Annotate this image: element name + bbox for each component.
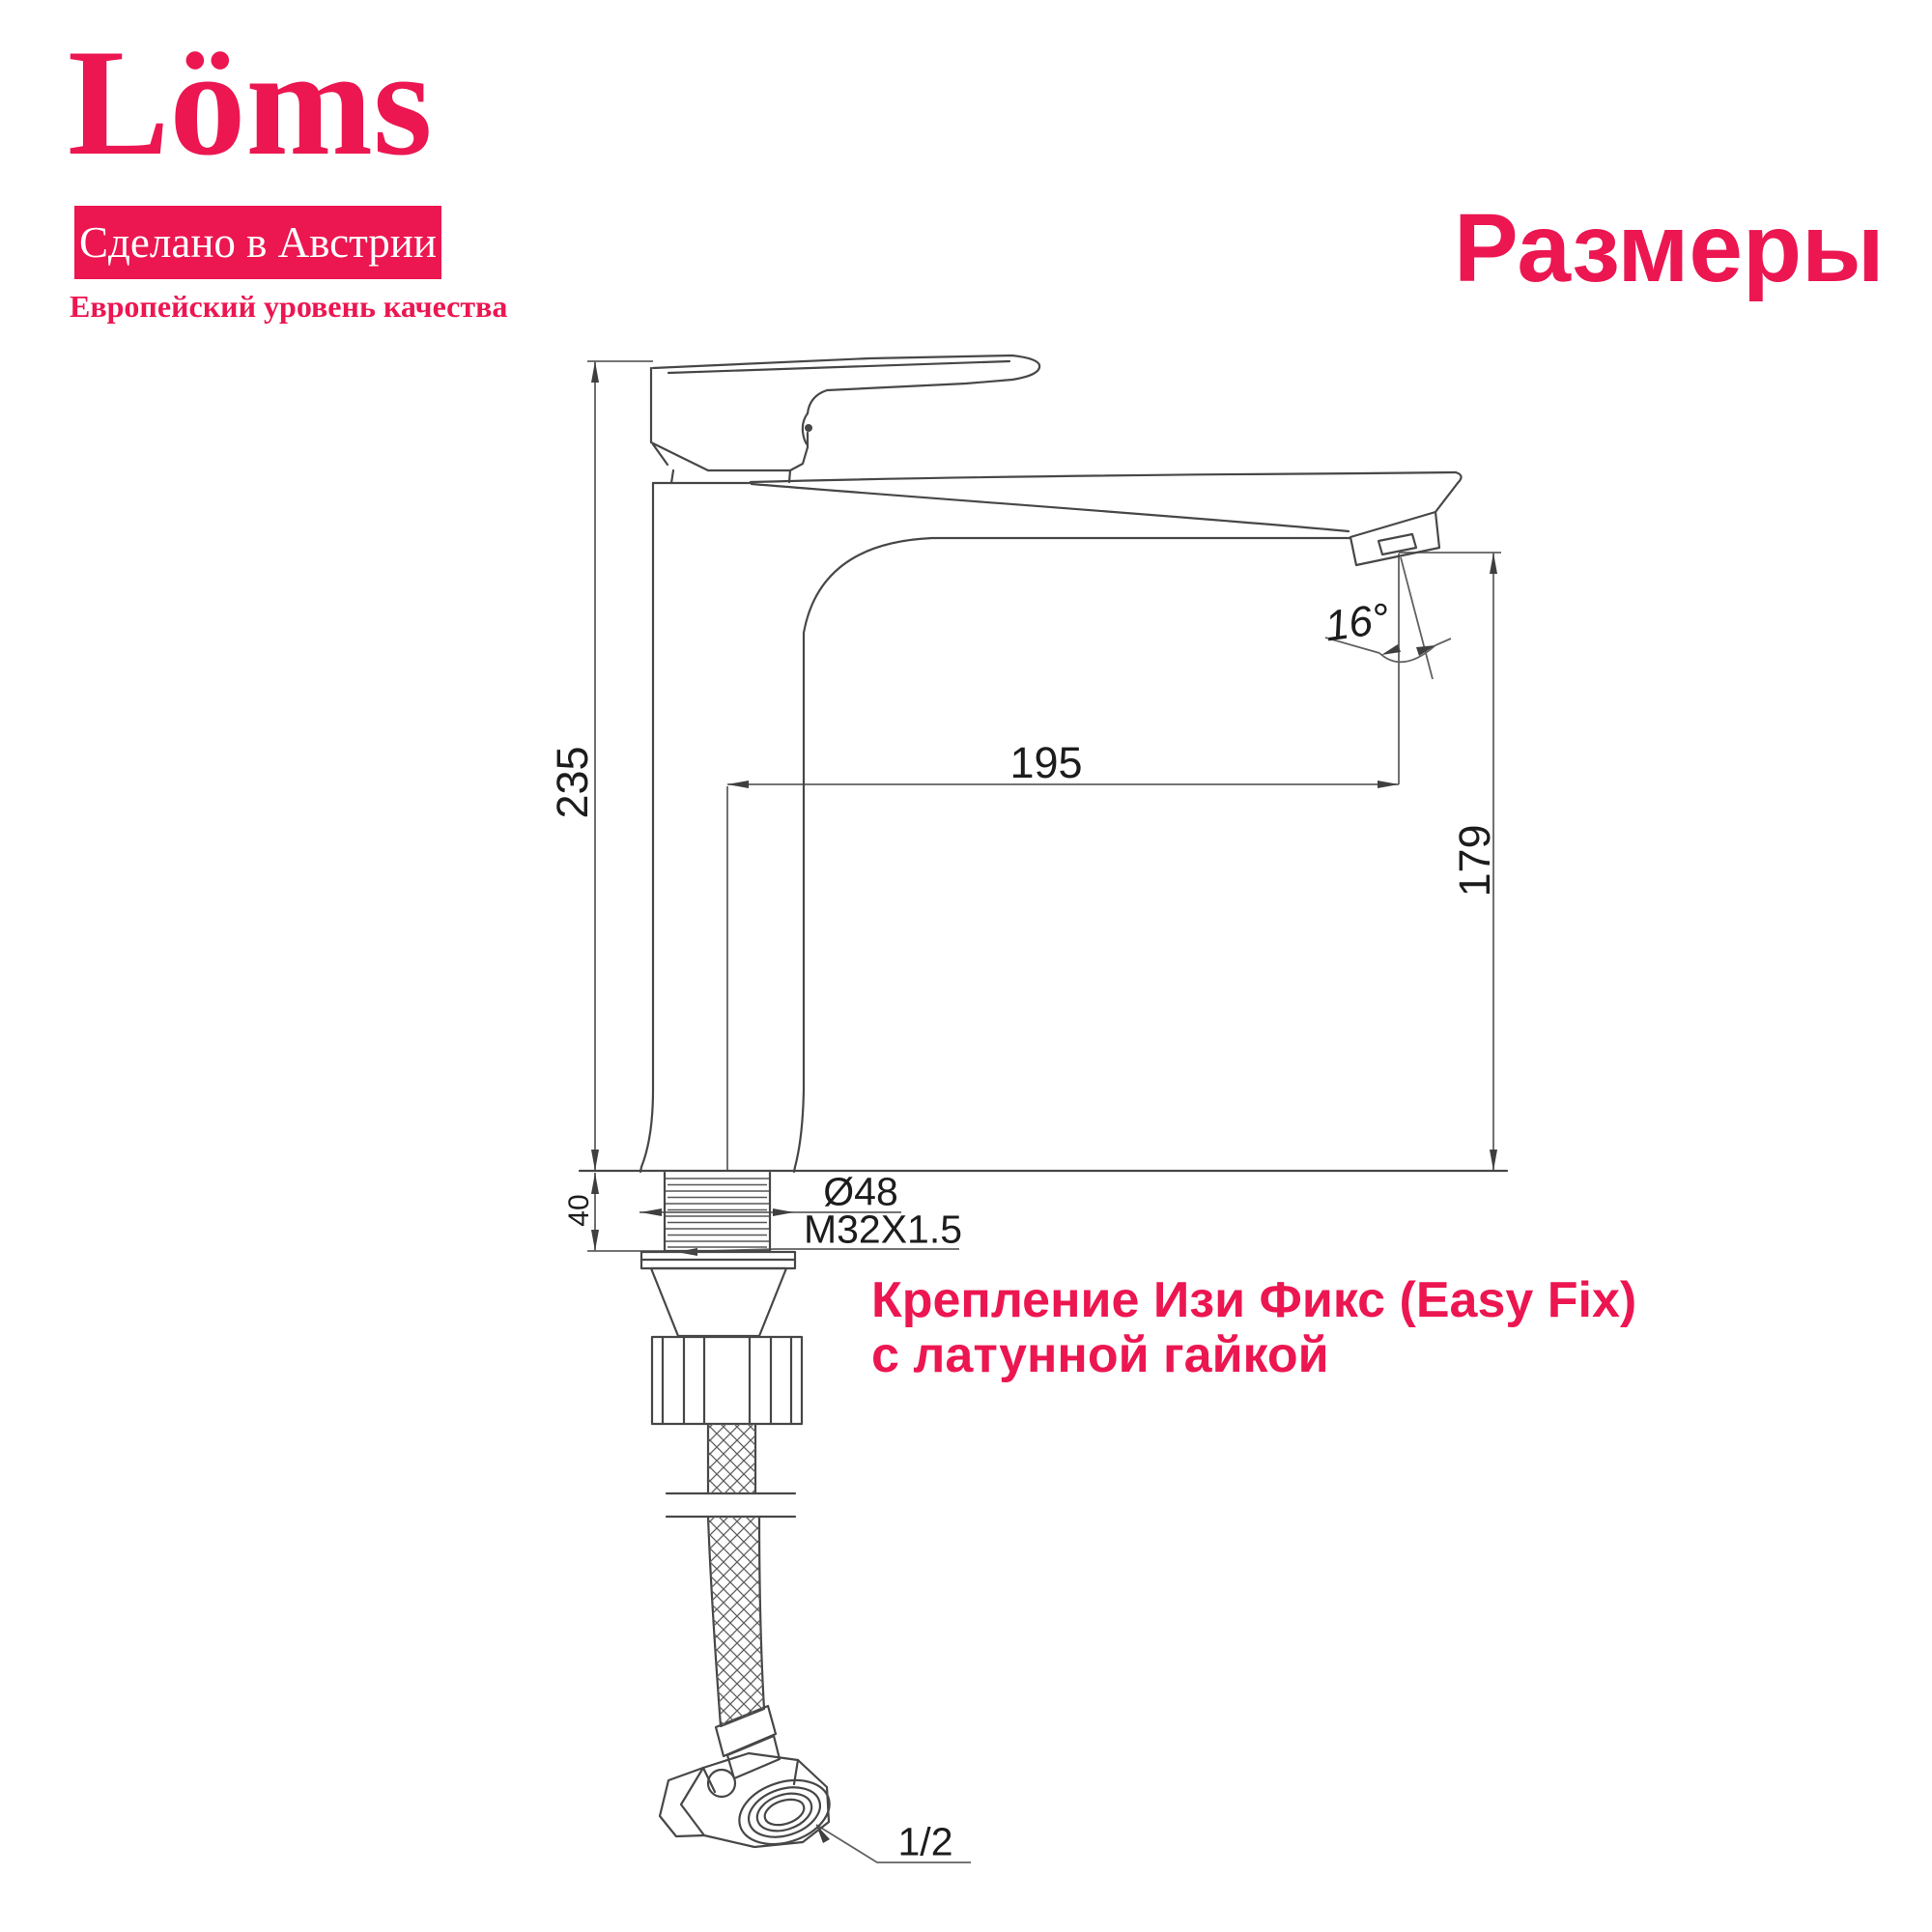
total-height-label: 235 xyxy=(548,746,598,818)
easyfix-annotation: Крепление Изи Фикс (Easy Fix) с латунной… xyxy=(871,1273,1636,1383)
spout-reach-label: 195 xyxy=(1009,738,1082,788)
thread-length-label: 40 xyxy=(563,1194,596,1226)
spout-angle-label: 16° xyxy=(1322,595,1393,652)
spout-height-label: 179 xyxy=(1450,824,1500,896)
mount-thread-label: M32X1.5 xyxy=(804,1207,962,1253)
easyfix-annotation-line1: Крепление Изи Фикс (Easy Fix) xyxy=(871,1273,1636,1328)
easyfix-annotation-line2: с латунной гайкой xyxy=(871,1328,1636,1383)
faucet-technical-drawing xyxy=(0,0,1932,1932)
hose-connection-label: 1/2 xyxy=(898,1820,953,1865)
